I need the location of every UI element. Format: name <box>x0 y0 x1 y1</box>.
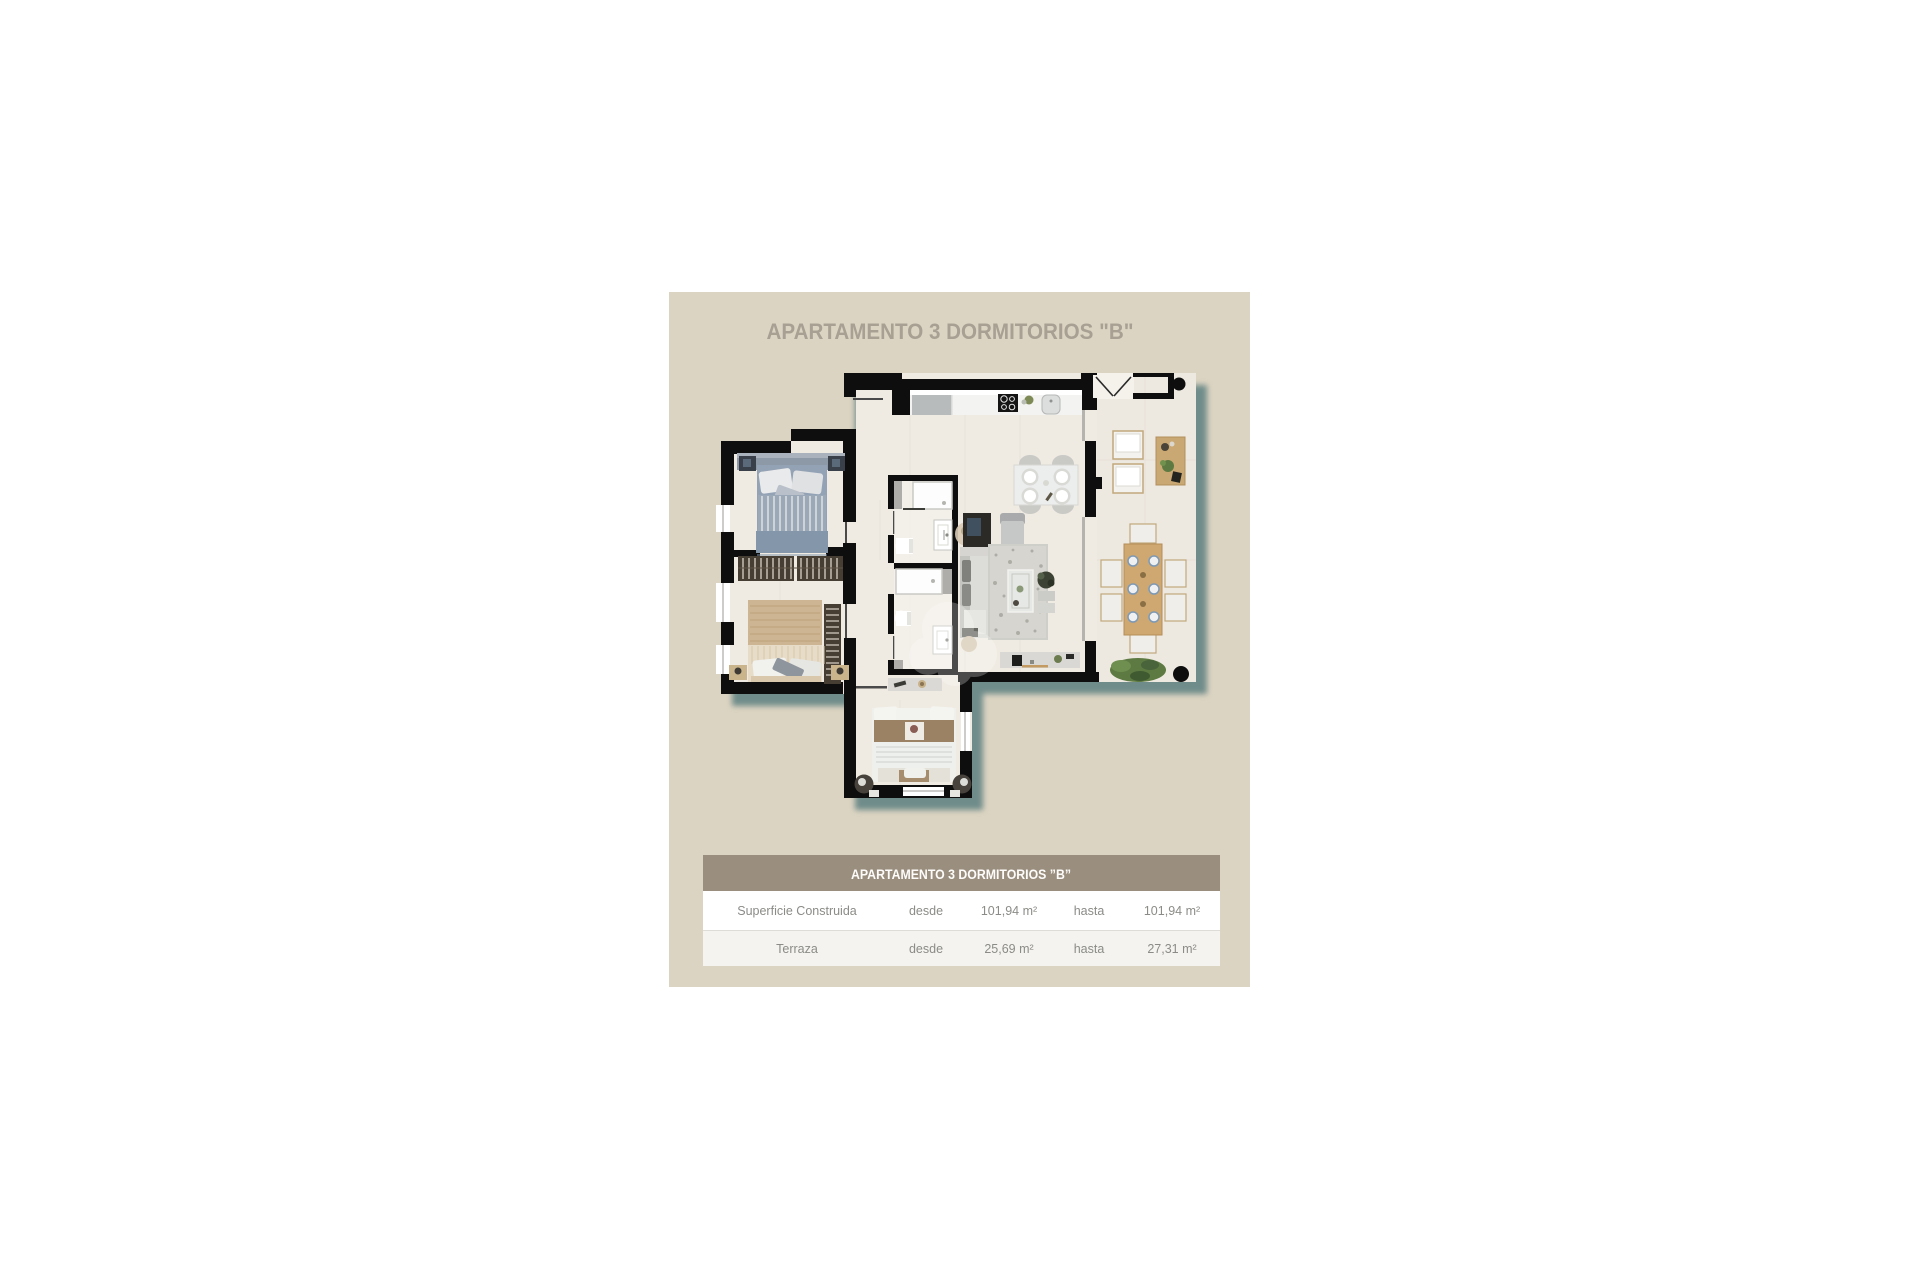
svg-text:101,94 m²: 101,94 m² <box>981 904 1037 918</box>
svg-text:25,69 m²: 25,69 m² <box>984 942 1033 956</box>
svg-text:APARTAMENTO 3 DORMITORIOS "B": APARTAMENTO 3 DORMITORIOS "B" <box>767 319 1134 344</box>
svg-text:desde: desde <box>909 904 943 918</box>
svg-text:APARTAMENTO 3 DORMITORIOS ”B”: APARTAMENTO 3 DORMITORIOS ”B” <box>851 867 1071 882</box>
svg-text:hasta: hasta <box>1074 942 1105 956</box>
svg-text:101,94 m²: 101,94 m² <box>1144 904 1200 918</box>
svg-text:Terraza: Terraza <box>776 942 818 956</box>
svg-text:27,31 m²: 27,31 m² <box>1147 942 1196 956</box>
svg-text:Superficie Construida: Superficie Construida <box>737 904 857 918</box>
svg-text:desde: desde <box>909 942 943 956</box>
svg-text:hasta: hasta <box>1074 904 1105 918</box>
